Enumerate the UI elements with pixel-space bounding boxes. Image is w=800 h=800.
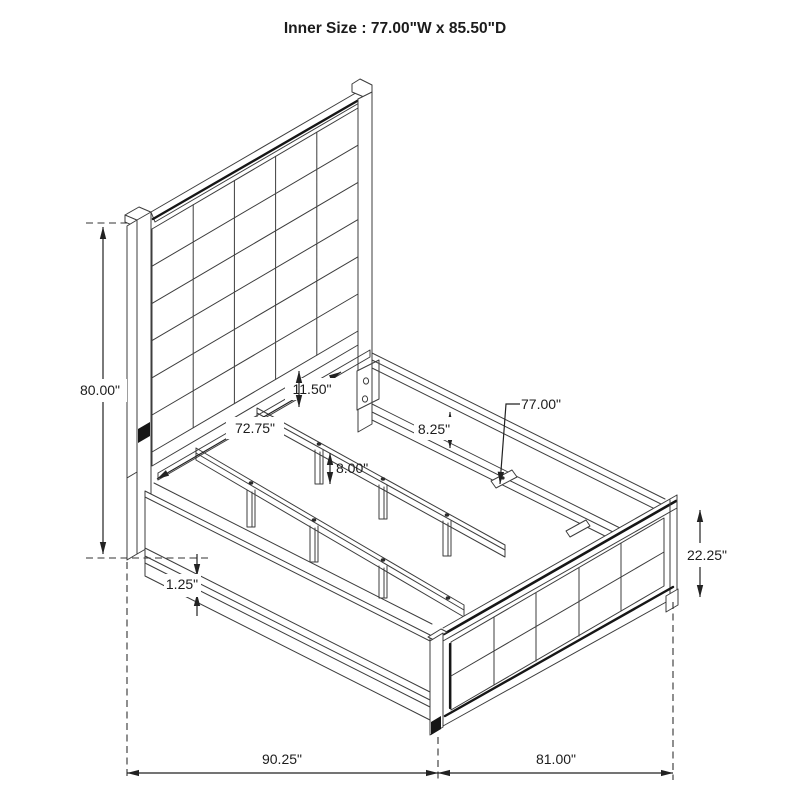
dim-base-trim-label: 1.25" [166, 576, 198, 592]
support-leg [247, 490, 255, 527]
dim-leg-height-label: 8.00" [336, 460, 368, 476]
footboard [428, 495, 678, 735]
dim-footboard-height-label: 22.25" [687, 547, 727, 563]
dim-headboard-width-label: 72.75" [235, 420, 275, 436]
support-leg [315, 450, 323, 484]
bed-isometric-drawing: 80.00" 72.75" 11.50" 8.00" 8.25" 77.00" … [0, 0, 800, 800]
bracket-screw [501, 476, 504, 479]
far-side-rail [372, 353, 665, 541]
dim-clearance-label: 11.50" [293, 381, 332, 397]
support-leg [310, 526, 318, 562]
headboard-left-post-front [127, 220, 137, 560]
dim-depth-span-label: 90.25" [262, 751, 302, 767]
center-slat-rail [257, 408, 505, 557]
dim-overall-height-label: 80.00" [80, 382, 120, 398]
dim-rail-height-label: 8.25" [418, 421, 450, 437]
dim-slat-length-label: 77.00" [521, 396, 561, 412]
bed-dimension-diagram-page: Inner Size : 77.00"W x 85.50"D [0, 0, 800, 800]
dim-width-span-label: 81.00" [536, 751, 576, 767]
